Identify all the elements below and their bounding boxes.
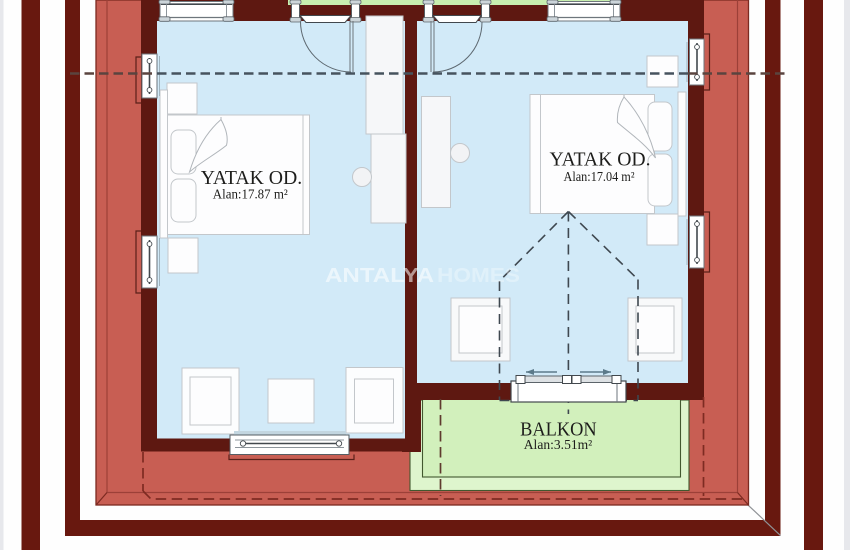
svg-text:HOMES: HOMES [437, 264, 520, 287]
svg-text:Alan:17.87 m²: Alan:17.87 m² [213, 187, 288, 202]
svg-text:Alan:17.04 m²: Alan:17.04 m² [564, 169, 635, 184]
svg-text:ANTALYA: ANTALYA [325, 264, 434, 287]
svg-text:Alan:3.51m²: Alan:3.51m² [524, 437, 593, 452]
svg-text:YATAK OD.: YATAK OD. [550, 150, 651, 171]
